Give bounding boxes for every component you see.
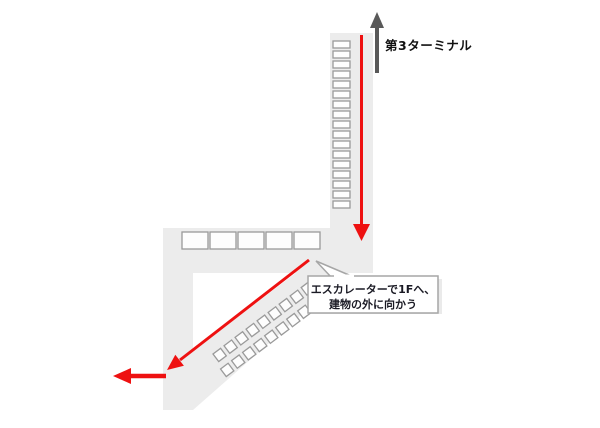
route-exit-head: [113, 368, 131, 384]
terminal-label: 第3ターミナル: [385, 35, 505, 54]
callout-text-line1: エスカレーターで1Fへ、: [311, 282, 436, 297]
walkway-segment: [333, 161, 350, 168]
walkway-segment: [333, 51, 350, 58]
walkway-segment: [333, 81, 350, 88]
vertical-walkway-segments: [333, 41, 350, 208]
walkway-segment: [333, 171, 350, 178]
hall-segment: [238, 232, 264, 249]
walkway-segment: [333, 191, 350, 198]
walkway-segment: [333, 131, 350, 138]
walkway-segment: [333, 151, 350, 158]
callout-text-line2: 建物の外に向かう: [329, 297, 417, 312]
walkway-segment: [333, 91, 350, 98]
hall-segment: [266, 232, 292, 249]
walkway-segment: [333, 181, 350, 188]
route-arrow-exit: [113, 368, 166, 384]
hall-walkway-segments: [182, 232, 320, 249]
terminal-arrow-head: [370, 12, 384, 28]
hall-segment: [210, 232, 236, 249]
walkway-segment: [333, 61, 350, 68]
walkway-segment: [333, 201, 350, 208]
callout-tail-join-patch: [334, 275, 354, 279]
hall-segment: [182, 232, 208, 249]
left-corridor-floor: [163, 228, 193, 410]
walkway-segment: [333, 41, 350, 48]
walkway-segment: [333, 101, 350, 108]
callout-text: エスカレーターで1Fへ、 建物の外に向かう: [308, 280, 438, 313]
walkway-segment: [333, 121, 350, 128]
hall-segment: [294, 232, 320, 249]
walkway-segment: [333, 71, 350, 78]
terminal-route-diagram: 第3ターミナル エスカレーターで1Fへ、 建物の外に向かう: [0, 0, 600, 428]
corridor-floor: [163, 33, 373, 410]
walkway-segment: [333, 111, 350, 118]
route-map-svg: [0, 0, 600, 428]
walkway-segment: [333, 141, 350, 148]
